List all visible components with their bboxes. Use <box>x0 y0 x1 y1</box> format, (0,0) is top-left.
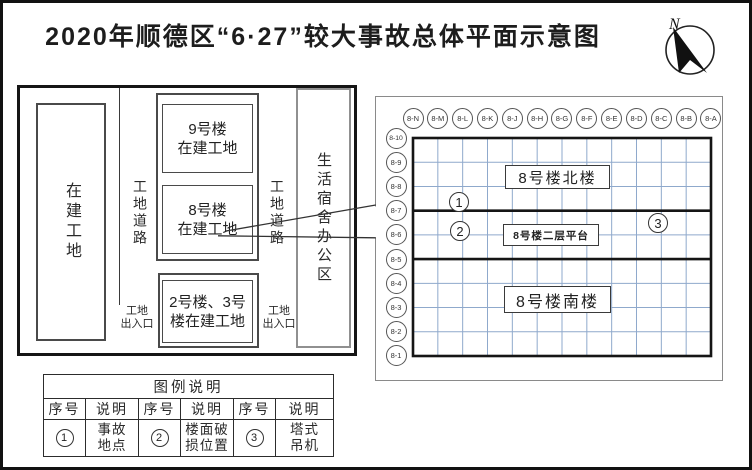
axis-bubble-8-A: 8-A <box>700 108 721 129</box>
living-office-area-label: 生活宿舍办公区 <box>313 152 334 285</box>
axis-bubble-8-J: 8-J <box>502 108 523 129</box>
axis-bubble-8-N: 8-N <box>403 108 424 129</box>
building-9-box: 9号楼 在建工地 <box>162 104 253 173</box>
axis-bubble-8-E: 8-E <box>601 108 622 129</box>
north-label: N <box>668 16 681 33</box>
living-office-area-box: 生活宿舍办公区 <box>296 88 351 348</box>
building-9-label: 9号楼 在建工地 <box>177 120 237 158</box>
road-divider-line <box>119 88 120 305</box>
north-arrow-icon <box>673 27 707 73</box>
axis-bubble-8-2: 8-2 <box>386 321 407 342</box>
axis-bubble-8-F: 8-F <box>576 108 597 129</box>
left-gate-label: 工地 出入口 <box>107 305 167 331</box>
building-8-label: 8号楼 在建工地 <box>177 201 237 239</box>
platform-label: 8号楼二层平台 <box>503 224 599 246</box>
marker-accident-location: 1 <box>449 192 469 212</box>
legend-num-3: 3 <box>234 420 276 457</box>
diagram-canvas: 2020年顺德区“6·27”较大事故总体平面示意图 N 在建工地 工地道路 9号… <box>0 0 752 470</box>
legend-desc-3: 塔式 吊机 <box>276 420 334 457</box>
axis-bubble-8-1: 8-1 <box>386 345 407 366</box>
north-building-label: 8号楼北楼 <box>505 165 610 189</box>
legend-num-2: 2 <box>139 420 181 457</box>
axis-bubble-8-5: 8-5 <box>386 249 407 270</box>
axis-bubble-8-10: 8-10 <box>386 128 407 149</box>
area-under-construction-box: 在建工地 <box>36 103 106 341</box>
axis-bubble-8-K: 8-K <box>477 108 498 129</box>
north-compass-icon: N <box>655 9 725 87</box>
building-8-box: 8号楼 在建工地 <box>162 185 253 254</box>
legend-header-seq-2: 序号 <box>139 399 181 420</box>
axis-bubble-8-7: 8-7 <box>386 200 407 221</box>
axis-bubble-8-3: 8-3 <box>386 297 407 318</box>
legend-circle-3: 3 <box>246 429 264 447</box>
south-building-label: 8号楼南楼 <box>504 286 611 313</box>
axis-bubble-8-L: 8-L <box>452 108 473 129</box>
legend-desc-1: 事故 地点 <box>86 420 139 457</box>
left-gate-line2: 出入口 <box>107 318 167 331</box>
legend-title: 图例说明 <box>44 375 334 399</box>
axis-bubble-8-6: 8-6 <box>386 224 407 245</box>
legend-desc-2: 楼面破 损位置 <box>181 420 234 457</box>
axis-bubble-8-B: 8-B <box>676 108 697 129</box>
building-2-3-line1: 2号楼、3号 <box>169 293 246 312</box>
legend-header-desc-2: 说明 <box>181 399 234 420</box>
legend-circle-1: 1 <box>56 429 74 447</box>
building-2-3-label: 2号楼、3号 楼在建工地 <box>169 293 246 331</box>
legend-header-row: 序号 说明 序号 说明 序号 说明 <box>44 399 334 420</box>
marker-floor-damage-position: 2 <box>450 221 470 241</box>
legend-header-seq-1: 序号 <box>44 399 86 420</box>
legend-num-1: 1 <box>44 420 86 457</box>
left-gate-line1: 工地 <box>107 305 167 318</box>
axis-bubble-8-D: 8-D <box>626 108 647 129</box>
axis-bubble-8-4: 8-4 <box>386 273 407 294</box>
axis-bubble-8-C: 8-C <box>651 108 672 129</box>
axis-bubble-8-M: 8-M <box>427 108 448 129</box>
legend-header-desc-1: 说明 <box>86 399 139 420</box>
area-under-construction-label: 在建工地 <box>59 182 83 262</box>
legend-circle-2: 2 <box>151 429 169 447</box>
building-8-line1: 8号楼 <box>177 201 237 220</box>
legend-header-desc-3: 说明 <box>276 399 334 420</box>
left-road-label: 工地道路 <box>130 179 150 247</box>
legend-table: 图例说明 序号 说明 序号 说明 序号 说明 1 事故 地点 2 楼面破 损位置… <box>43 374 334 457</box>
building-8-line2: 在建工地 <box>177 220 237 239</box>
building-2-3-line2: 楼在建工地 <box>169 312 246 331</box>
legend-header-seq-3: 序号 <box>234 399 276 420</box>
axis-bubble-8-9: 8-9 <box>386 152 407 173</box>
axis-bubble-8-H: 8-H <box>527 108 548 129</box>
building-2-3-box: 2号楼、3号 楼在建工地 <box>162 280 253 343</box>
page-title: 2020年顺德区“6·27”较大事故总体平面示意图 <box>43 17 603 53</box>
building-9-line2: 在建工地 <box>177 139 237 158</box>
legend-data-row: 1 事故 地点 2 楼面破 损位置 3 塔式 吊机 <box>44 420 334 457</box>
axis-bubble-8-8: 8-8 <box>386 176 407 197</box>
axis-bubble-8-G: 8-G <box>551 108 572 129</box>
building-9-line1: 9号楼 <box>177 120 237 139</box>
right-road-label: 工地道路 <box>267 179 287 247</box>
marker-tower-crane: 3 <box>648 213 668 233</box>
